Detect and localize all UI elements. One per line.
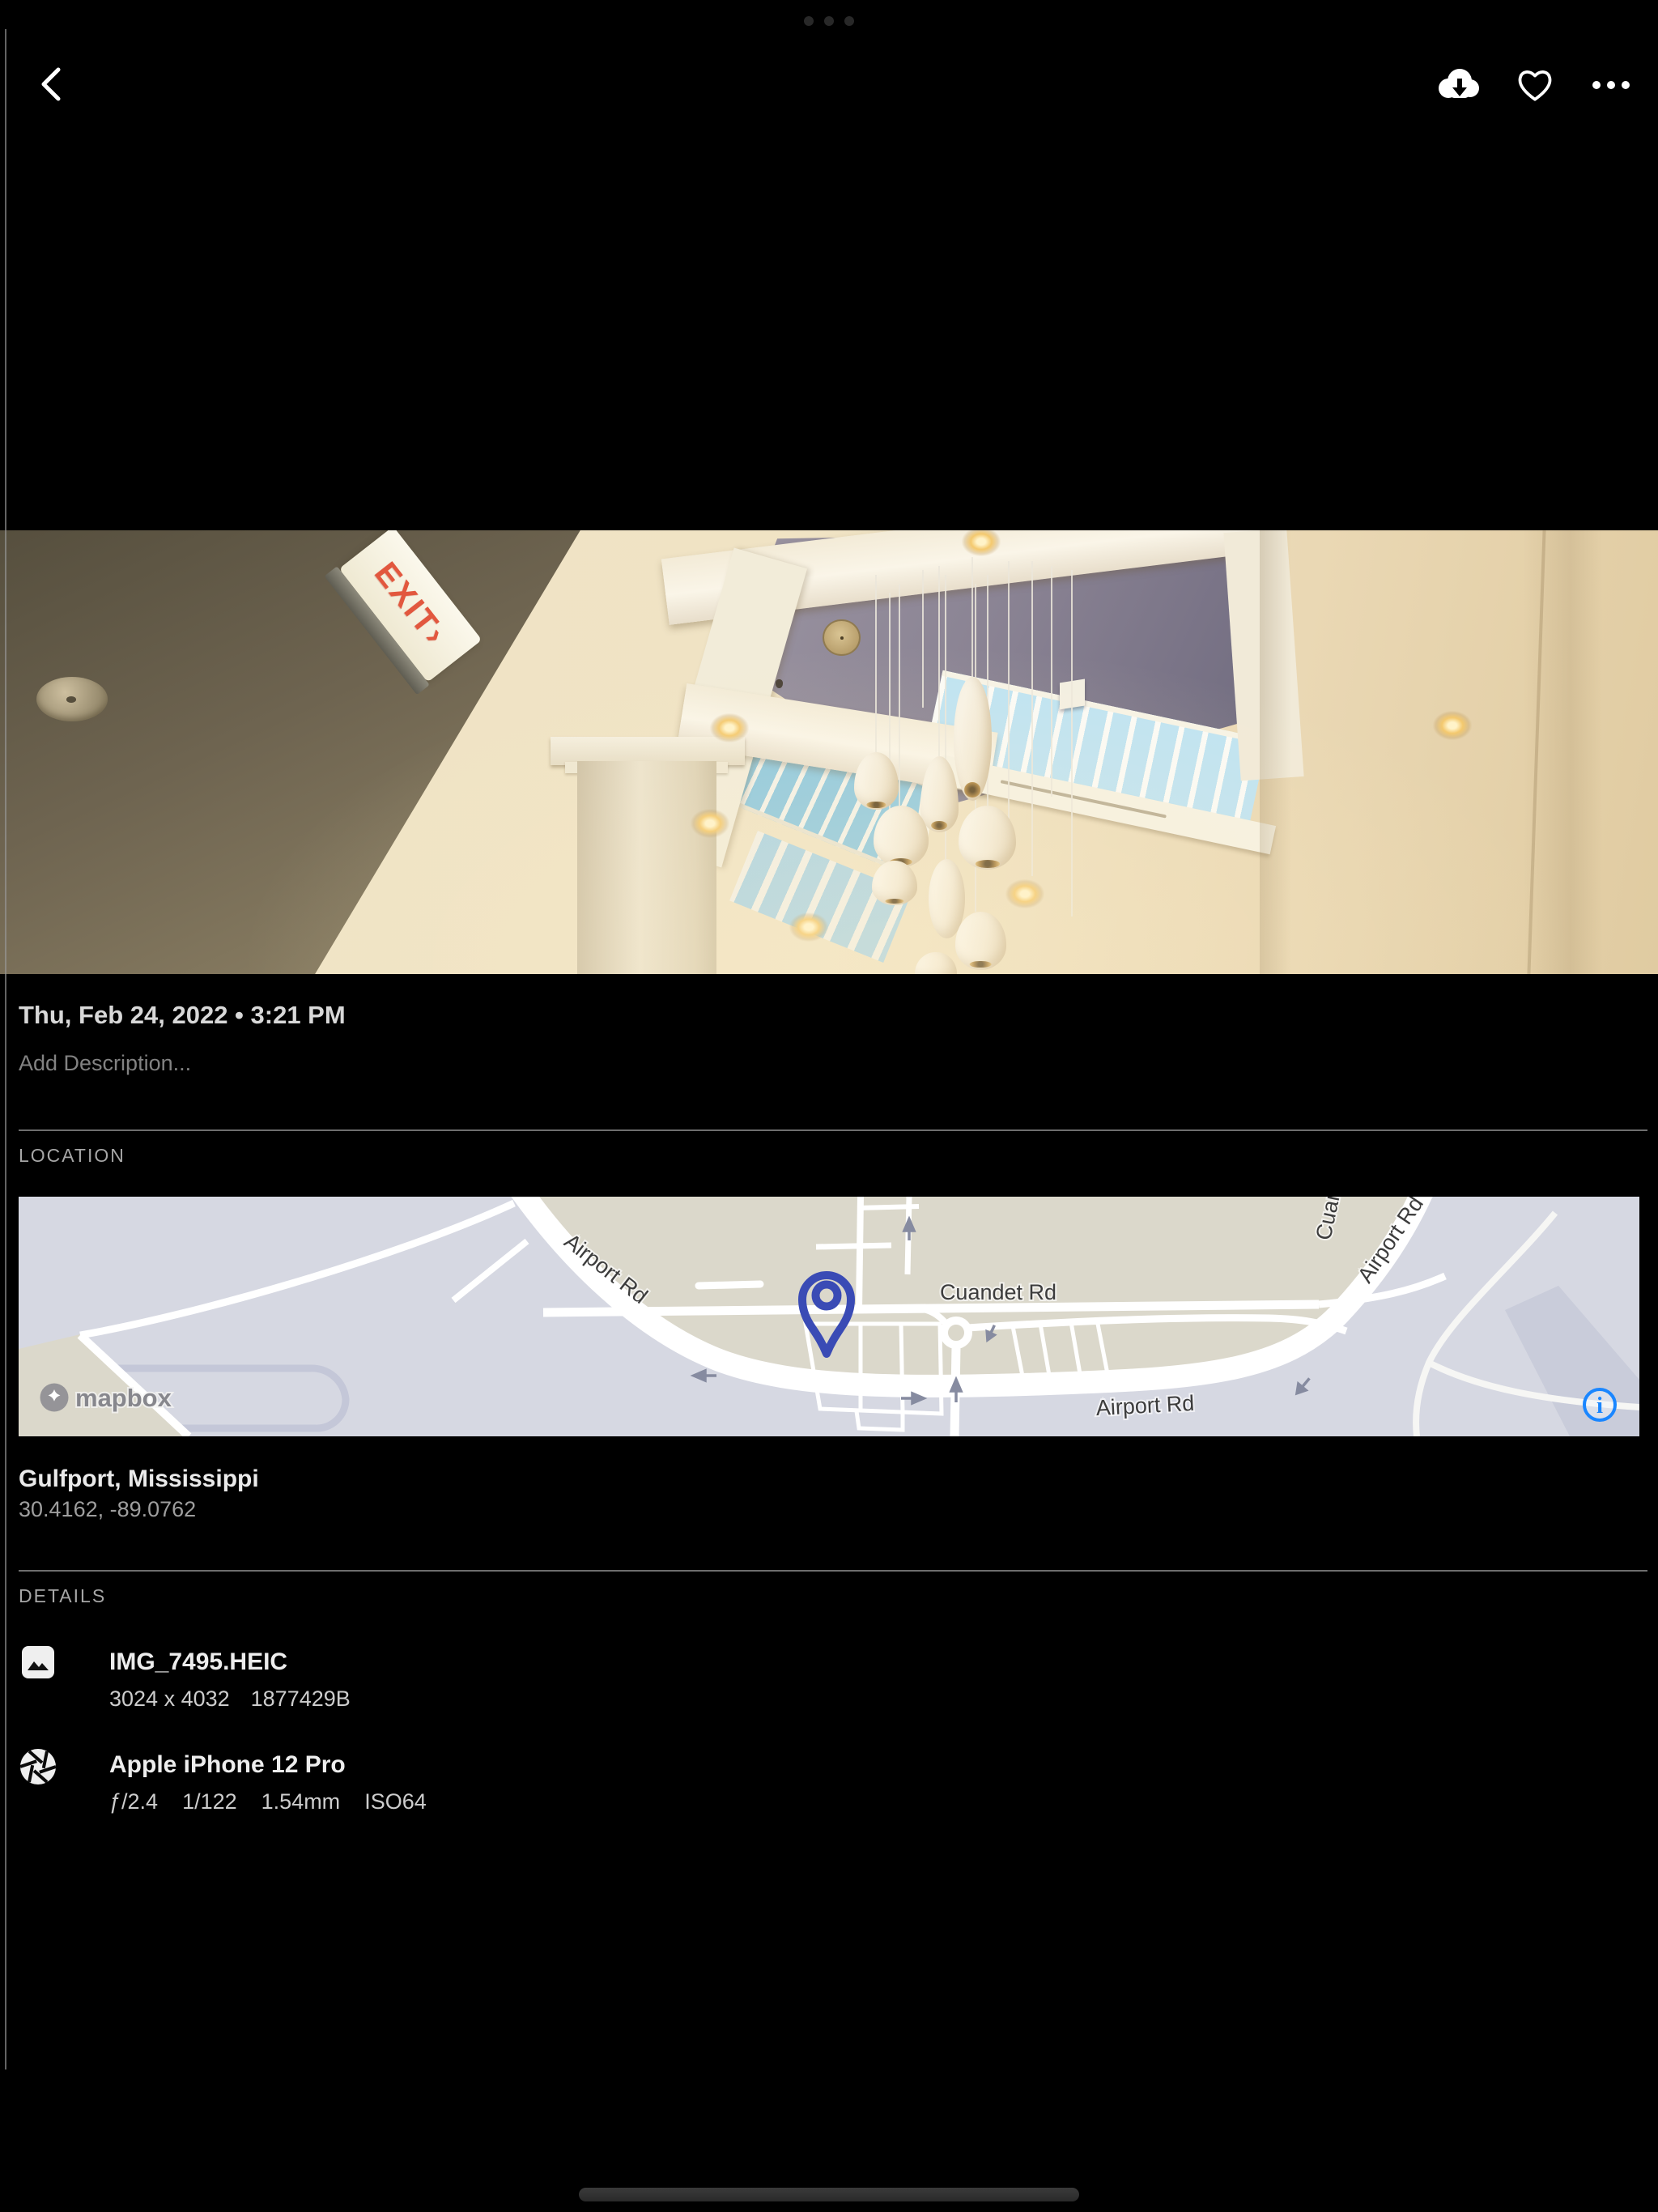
camera-model: Apple iPhone 12 Pro <box>109 1751 346 1779</box>
ellipsis-horizontal-icon <box>1589 79 1633 93</box>
mapbox-logo[interactable]: mapbox <box>40 1384 172 1413</box>
back-button[interactable] <box>24 57 83 115</box>
file-size: 1877429B <box>251 1687 351 1711</box>
top-bar <box>0 0 1658 170</box>
map-label-cuandet: Cuandet Rd <box>940 1280 1056 1304</box>
info-icon-glyph: i <box>1596 1393 1603 1419</box>
mapbox-wordmark: mapbox <box>75 1384 172 1412</box>
more-options-button[interactable] <box>1582 57 1640 115</box>
exif-focal-length: 1.54mm <box>261 1789 341 1814</box>
section-divider <box>19 1570 1647 1572</box>
file-dimensions: 3024 x 4032 <box>109 1687 230 1711</box>
map-road <box>857 1206 919 1208</box>
map-road <box>699 1284 760 1286</box>
map-road <box>816 1245 891 1247</box>
location-section-label: LOCATION <box>19 1145 125 1167</box>
aperture-icon <box>19 1747 57 1786</box>
favorite-button[interactable] <box>1506 57 1564 115</box>
map-roundabout <box>944 1321 968 1345</box>
location-place-name: Gulfport, Mississippi <box>19 1465 259 1493</box>
exif-exposure: 1/122 <box>182 1789 237 1814</box>
chevron-left-icon <box>34 65 73 108</box>
file-name: IMG_7495.HEIC <box>109 1648 287 1676</box>
location-coordinates: 30.4162, -89.0762 <box>19 1497 196 1522</box>
photo-details-screen: EXIT› Thu, Feb 24, 2022 • 3:21 PM Add De… <box>0 0 1658 2212</box>
home-indicator[interactable] <box>579 2188 1079 2201</box>
section-divider <box>19 1129 1647 1131</box>
photo-viewer[interactable]: EXIT› <box>0 530 1658 974</box>
photo-date: Thu, Feb 24, 2022 • 3:21 PM <box>19 1001 346 1030</box>
page-edge-line <box>5 29 6 2069</box>
file-meta: 3024 x 40321877429B <box>109 1687 372 1712</box>
exif-iso: ISO64 <box>364 1789 427 1814</box>
heart-icon <box>1514 65 1556 108</box>
map-label-airport-south: Airport Rd <box>1095 1391 1195 1420</box>
location-map[interactable]: Airport Rd Cuandet Rd Airport Rd Airport… <box>19 1197 1639 1436</box>
map-info-button[interactable]: i <box>1584 1389 1615 1420</box>
camera-exif: ƒ/2.41/1221.54mmISO64 <box>109 1789 451 1814</box>
image-file-icon <box>21 1645 55 1679</box>
photo-glow-overlay <box>0 530 1658 974</box>
download-button[interactable] <box>1428 57 1486 115</box>
details-section-label: DETAILS <box>19 1585 106 1607</box>
map-road <box>859 1197 861 1310</box>
description-field[interactable]: Add Description... <box>19 1051 191 1076</box>
exif-aperture: ƒ/2.4 <box>109 1789 158 1814</box>
cloud-download-icon <box>1431 62 1483 110</box>
